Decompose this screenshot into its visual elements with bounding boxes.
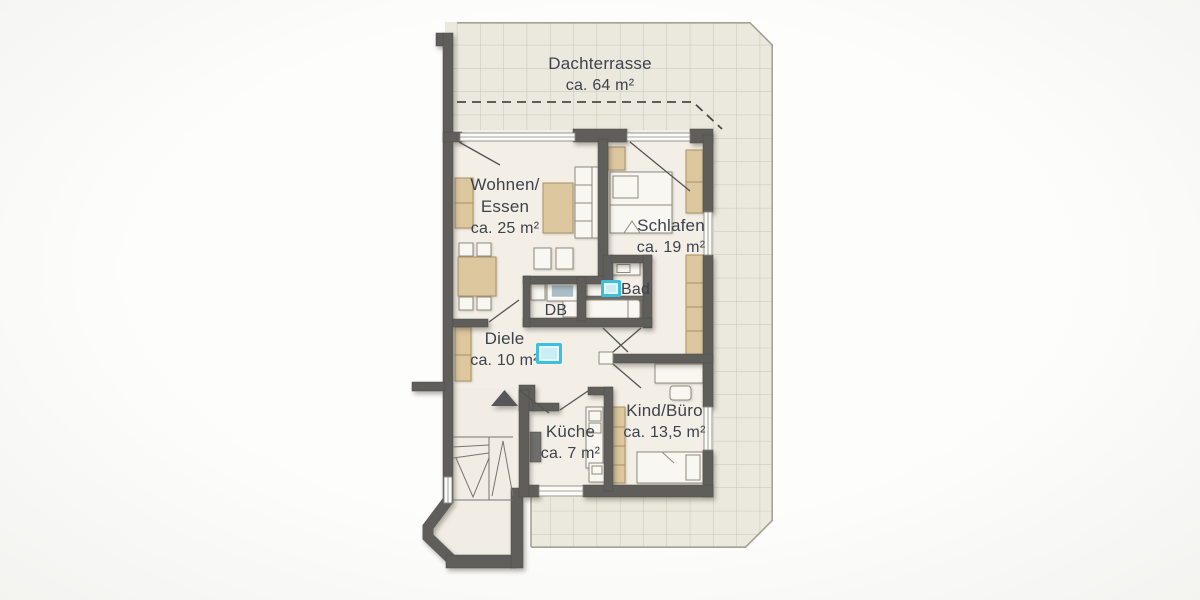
room-name: Bad	[621, 279, 650, 301]
wall-bath-top	[523, 276, 608, 284]
bathroom-cabinet	[612, 262, 640, 275]
room-name: DB	[539, 300, 573, 322]
room-area: ca. 19 m²	[612, 237, 730, 259]
dining-chair	[459, 297, 473, 310]
room-name: Kind/Büro	[602, 400, 727, 422]
door-leaf-open	[599, 352, 613, 364]
room-area: ca. 7 m²	[518, 443, 623, 465]
wall-top	[443, 132, 462, 142]
desk	[655, 364, 703, 383]
stairwell-floor	[425, 388, 514, 560]
wall-living-stub	[453, 319, 488, 327]
bed-pillow	[613, 176, 638, 198]
dining-chair	[477, 243, 491, 256]
room-label-schlafen: Schlafen ca. 19 m²	[612, 215, 730, 259]
hotspot-marker-bad[interactable]	[601, 280, 621, 297]
room-label-bad: Bad	[621, 279, 650, 301]
room-name: Wohnen/	[445, 174, 565, 196]
room-label-kind-buero: Kind/Büro ca. 13,5 m²	[602, 400, 727, 444]
wall-stair-bottom	[446, 555, 516, 568]
dining-chair	[459, 243, 473, 256]
wall-right	[703, 135, 713, 212]
wall-corridor	[612, 354, 713, 363]
wall-bath-left	[523, 276, 530, 327]
nightstand	[608, 147, 625, 170]
room-area: ca. 25 m²	[445, 218, 565, 240]
wall-left	[443, 33, 453, 503]
desk-chair	[670, 386, 691, 400]
room-label-wohnen-essen: Wohnen/ Essen ca. 25 m²	[445, 174, 565, 240]
kitchen-sink	[589, 411, 601, 421]
ottoman	[534, 248, 551, 269]
wall-db-divider	[577, 277, 586, 321]
floor-plan: Dachterrasse ca. 64 m² Wohnen/ Essen ca.…	[0, 0, 1200, 600]
wall-right	[703, 255, 713, 407]
dining-chair	[477, 297, 491, 310]
dining-table	[458, 257, 496, 296]
hotspot-marker-diele[interactable]	[536, 343, 562, 364]
bed-pillow	[686, 455, 700, 480]
shower-tray	[551, 285, 574, 298]
wardrobe	[686, 255, 704, 357]
room-name: Essen	[445, 196, 565, 218]
room-area: ca. 64 m²	[500, 75, 700, 97]
room-name: Schlafen	[612, 215, 730, 237]
room-name: Dachterrasse	[500, 53, 700, 75]
washbasin	[531, 284, 545, 300]
room-label-dachterrasse: Dachterrasse ca. 64 m²	[500, 53, 700, 97]
wall-bottom	[583, 485, 713, 497]
wall-party-stub	[412, 382, 445, 391]
bathtub	[584, 300, 640, 319]
room-label-db: DB	[539, 300, 573, 322]
ottoman	[556, 248, 573, 269]
room-area: ca. 13,5 m²	[602, 422, 727, 444]
